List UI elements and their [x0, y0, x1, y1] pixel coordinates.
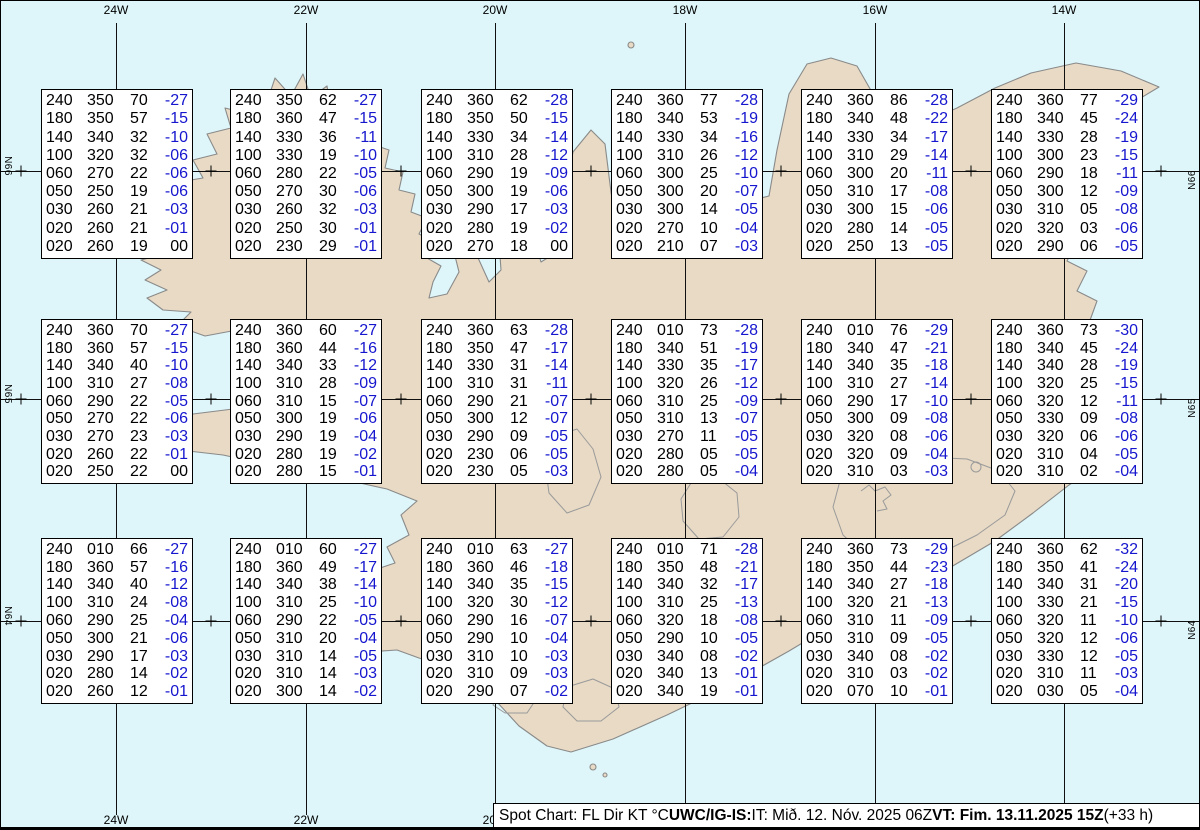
flight-level-value: 140	[426, 577, 467, 593]
level-row: 06029022-05	[235, 612, 377, 630]
spot-box-r1c2: 24035062-2718036047-1514033036-111003301…	[230, 89, 382, 259]
wind-dir-value: 340	[657, 341, 700, 357]
temperature-value: 00	[536, 239, 568, 255]
graticule-cross-icon	[396, 394, 407, 405]
flight-level-value: 020	[996, 239, 1037, 255]
meridian-label-top: 18W	[673, 4, 698, 17]
flight-level-value: 100	[616, 376, 657, 392]
flight-level-value: 050	[235, 411, 276, 427]
wind-speed-value: 06	[510, 447, 536, 463]
graticule-cross-icon	[206, 394, 217, 405]
wind-speed-value: 14	[319, 684, 345, 700]
temperature-value: -17	[726, 577, 758, 593]
wind-dir-value: 300	[87, 631, 130, 647]
level-row: 03029019-04	[235, 428, 377, 446]
flight-level-value: 020	[426, 239, 467, 255]
wind-dir-value: 290	[657, 631, 700, 647]
flight-level-value: 240	[426, 93, 467, 109]
flight-level-value: 060	[46, 613, 87, 629]
meridian-label-top: 22W	[294, 4, 319, 17]
flight-level-value: 030	[46, 202, 87, 218]
level-row: 18035050-15	[426, 110, 568, 128]
flight-level-value: 020	[616, 464, 657, 480]
wind-dir-value: 310	[847, 148, 890, 164]
temperature-value: -13	[726, 595, 758, 611]
wind-speed-value: 03	[890, 464, 916, 480]
wind-dir-value: 260	[87, 684, 130, 700]
wind-speed-value: 23	[130, 429, 156, 445]
temperature-value: -12	[726, 376, 758, 392]
level-row: 14033034-17	[806, 128, 948, 146]
flight-level-value: 020	[996, 464, 1037, 480]
level-row: 18035044-23	[806, 559, 948, 577]
flight-level-value: 060	[616, 394, 657, 410]
flight-level-value: 140	[426, 358, 467, 374]
temperature-value: -06	[345, 411, 377, 427]
level-row: 24036077-29	[996, 92, 1138, 110]
temperature-value: -19	[1106, 130, 1138, 146]
wind-dir-value: 270	[657, 429, 700, 445]
flight-level-value: 030	[235, 202, 276, 218]
wind-dir-value: 340	[847, 577, 890, 593]
temperature-value: -29	[916, 323, 948, 339]
wind-dir-value: 340	[657, 684, 700, 700]
wind-speed-value: 15	[319, 394, 345, 410]
wind-dir-value: 340	[657, 111, 700, 127]
parallel-label-left: N65	[2, 384, 12, 404]
wind-speed-value: 86	[890, 93, 916, 109]
level-row: 18034045-24	[996, 110, 1138, 128]
wind-dir-value: 330	[1037, 595, 1080, 611]
wind-dir-value: 310	[1037, 447, 1080, 463]
graticule-cross-icon	[966, 616, 977, 627]
wind-dir-value: 360	[1037, 93, 1080, 109]
wind-speed-value: 12	[1080, 631, 1106, 647]
wind-speed-value: 23	[1080, 148, 1106, 164]
level-row: 03029017-03	[46, 648, 188, 666]
flight-level-value: 020	[46, 684, 87, 700]
flight-level-value: 020	[426, 464, 467, 480]
level-row: 05031009-05	[806, 630, 948, 648]
temperature-value: -17	[536, 341, 568, 357]
temperature-value: -07	[726, 184, 758, 200]
wind-dir-value: 290	[847, 394, 890, 410]
wind-speed-value: 40	[130, 358, 156, 374]
flight-level-value: 030	[996, 202, 1037, 218]
wind-dir-value: 290	[467, 394, 510, 410]
wind-dir-value: 280	[87, 666, 130, 682]
wind-dir-value: 260	[87, 239, 130, 255]
level-row: 10031028-12	[426, 147, 568, 165]
level-row: 10031025-13	[616, 594, 758, 612]
wind-speed-value: 09	[510, 666, 536, 682]
temperature-value: -10	[156, 130, 188, 146]
wind-dir-value: 340	[276, 577, 319, 593]
wind-speed-value: 19	[700, 684, 726, 700]
wind-dir-value: 320	[657, 613, 700, 629]
temperature-value: -06	[156, 411, 188, 427]
level-row: 24001060-27	[235, 541, 377, 559]
level-row: 03030015-06	[806, 201, 948, 219]
temperature-value: -28	[916, 93, 948, 109]
flight-level-value: 060	[616, 166, 657, 182]
wind-speed-value: 21	[510, 394, 536, 410]
flight-level-value: 140	[616, 358, 657, 374]
flight-level-value: 030	[616, 429, 657, 445]
temperature-value: -04	[1106, 464, 1138, 480]
flight-level-value: 050	[806, 184, 847, 200]
flight-level-value: 180	[235, 560, 276, 576]
temperature-value: -28	[726, 323, 758, 339]
level-row: 03026032-03	[235, 201, 377, 219]
temperature-value: -27	[345, 542, 377, 558]
level-row: 03034008-02	[806, 648, 948, 666]
wind-speed-value: 47	[510, 341, 536, 357]
flight-level-value: 240	[996, 323, 1037, 339]
flight-level-value: 140	[46, 358, 87, 374]
wind-speed-value: 40	[130, 577, 156, 593]
level-row: 02025013-05	[806, 238, 948, 256]
flight-level-value: 020	[806, 666, 847, 682]
level-row: 03027011-05	[616, 428, 758, 446]
temperature-value: -02	[916, 666, 948, 682]
flight-level-value: 140	[806, 358, 847, 374]
temperature-value: -09	[1106, 184, 1138, 200]
temperature-value: -05	[1106, 649, 1138, 665]
meridian-label-top: 20W	[483, 4, 508, 17]
wind-dir-value: 340	[657, 666, 700, 682]
wind-dir-value: 310	[1037, 202, 1080, 218]
temperature-value: -05	[726, 202, 758, 218]
parallel-label-right: N64	[1188, 620, 1198, 640]
temperature-value: -04	[156, 613, 188, 629]
footer-text-segment: IT: Mið. 12. Nóv. 2025 06Z	[752, 807, 933, 825]
level-row: 02029007-02	[426, 683, 568, 701]
flight-level-value: 100	[46, 376, 87, 392]
flight-level-value: 020	[616, 447, 657, 463]
wind-dir-value: 310	[657, 394, 700, 410]
wind-speed-value: 05	[510, 464, 536, 480]
temperature-value: -01	[345, 464, 377, 480]
temperature-value: -30	[1106, 323, 1138, 339]
level-row: 03031010-03	[426, 648, 568, 666]
flight-level-value: 100	[46, 148, 87, 164]
level-row: 0202701800	[426, 238, 568, 256]
level-row: 02028014-05	[806, 220, 948, 238]
level-row: 03030014-05	[616, 201, 758, 219]
wind-speed-value: 28	[319, 376, 345, 392]
wind-dir-value: 330	[847, 130, 890, 146]
level-row: 24036062-32	[996, 541, 1138, 559]
level-row: 24001071-28	[616, 541, 758, 559]
temperature-value: -27	[345, 323, 377, 339]
wind-dir-value: 340	[847, 649, 890, 665]
wind-dir-value: 330	[657, 130, 700, 146]
graticule-cross-icon	[16, 166, 27, 177]
temperature-value: -08	[916, 184, 948, 200]
level-row: 24001076-29	[806, 322, 948, 340]
level-row: 14034032-17	[616, 577, 758, 595]
wind-dir-value: 260	[87, 202, 130, 218]
wind-dir-value: 310	[847, 613, 890, 629]
wind-speed-value: 57	[130, 560, 156, 576]
level-row: 24036073-29	[806, 541, 948, 559]
temperature-value: -19	[726, 341, 758, 357]
parallel-label-right: N66	[1188, 170, 1198, 190]
flight-level-value: 060	[806, 166, 847, 182]
temperature-value: -10	[726, 166, 758, 182]
wind-dir-value: 030	[1037, 684, 1080, 700]
level-row: 03033012-05	[996, 648, 1138, 666]
wind-dir-value: 310	[276, 631, 319, 647]
flight-level-value: 140	[616, 130, 657, 146]
flight-level-value: 180	[46, 560, 87, 576]
level-row: 14034028-19	[996, 357, 1138, 375]
temperature-value: -03	[345, 202, 377, 218]
temperature-value: -28	[536, 323, 568, 339]
spot-box-r2c1: 24036070-2718036057-1514034040-101003102…	[41, 319, 193, 484]
level-row: 02026022-01	[46, 446, 188, 464]
temperature-value: -01	[916, 684, 948, 700]
wind-speed-value: 62	[319, 93, 345, 109]
wind-speed-value: 19	[319, 447, 345, 463]
flight-level-value: 140	[806, 577, 847, 593]
wind-speed-value: 22	[130, 447, 156, 463]
wind-dir-value: 280	[467, 221, 510, 237]
wind-dir-value: 270	[467, 239, 510, 255]
temperature-value: -05	[916, 221, 948, 237]
wind-dir-value: 330	[1037, 130, 1080, 146]
temperature-value: 00	[156, 239, 188, 255]
wind-dir-value: 360	[657, 93, 700, 109]
wind-dir-value: 310	[276, 666, 319, 682]
wind-dir-value: 330	[467, 130, 510, 146]
wind-speed-value: 32	[130, 130, 156, 146]
wind-dir-value: 310	[276, 649, 319, 665]
wind-dir-value: 290	[467, 684, 510, 700]
temperature-value: -14	[916, 148, 948, 164]
wind-speed-value: 21	[1080, 595, 1106, 611]
wind-dir-value: 010	[87, 542, 130, 558]
level-row: 24001063-27	[426, 541, 568, 559]
wind-speed-value: 22	[130, 464, 156, 480]
wind-dir-value: 310	[847, 184, 890, 200]
wind-dir-value: 010	[847, 323, 890, 339]
graticule-cross-icon	[396, 166, 407, 177]
temperature-value: -06	[1106, 221, 1138, 237]
wind-dir-value: 360	[847, 542, 890, 558]
wind-dir-value: 340	[1037, 358, 1080, 374]
flight-level-value: 050	[426, 411, 467, 427]
wind-speed-value: 11	[890, 613, 916, 629]
level-row: 02021007-03	[616, 238, 758, 256]
level-row: 18034048-22	[806, 110, 948, 128]
wind-speed-value: 08	[890, 649, 916, 665]
temperature-value: -10	[916, 394, 948, 410]
temperature-value: -02	[156, 666, 188, 682]
temperature-value: -22	[916, 111, 948, 127]
level-row: 10031027-08	[46, 375, 188, 393]
wind-dir-value: 280	[847, 221, 890, 237]
wind-dir-value: 340	[1037, 341, 1080, 357]
flight-level-value: 100	[806, 148, 847, 164]
flight-level-value: 240	[806, 93, 847, 109]
wind-speed-value: 05	[1080, 684, 1106, 700]
wind-dir-value: 330	[467, 358, 510, 374]
graticule-cross-icon	[1156, 166, 1167, 177]
flight-level-value: 060	[426, 394, 467, 410]
graticule-cross-icon	[776, 394, 787, 405]
flight-level-value: 060	[46, 166, 87, 182]
temperature-value: -10	[1106, 613, 1138, 629]
wind-dir-value: 340	[87, 577, 130, 593]
wind-dir-value: 340	[1037, 577, 1080, 593]
temperature-value: -08	[1106, 202, 1138, 218]
wind-speed-value: 48	[890, 111, 916, 127]
level-row: 06029016-07	[426, 612, 568, 630]
level-row: 05030020-07	[616, 183, 758, 201]
wind-dir-value: 350	[657, 560, 700, 576]
flight-level-value: 240	[46, 323, 87, 339]
flight-level-value: 180	[235, 341, 276, 357]
level-row: 14034040-12	[46, 577, 188, 595]
level-row: 24036070-27	[46, 322, 188, 340]
temperature-value: -12	[536, 595, 568, 611]
level-row: 18036044-16	[235, 340, 377, 358]
wind-dir-value: 340	[847, 358, 890, 374]
level-row: 02003005-04	[996, 683, 1138, 701]
temperature-value: -10	[345, 595, 377, 611]
level-row: 05027030-06	[235, 183, 377, 201]
wind-dir-value: 340	[87, 130, 130, 146]
flight-level-value: 020	[616, 666, 657, 682]
footer-text-segment: VT: Fim. 13.11.2025 15Z	[932, 807, 1103, 825]
level-row: 06032011-10	[996, 612, 1138, 630]
wind-speed-value: 62	[1080, 542, 1106, 558]
flight-level-value: 020	[235, 684, 276, 700]
temperature-value: -04	[345, 429, 377, 445]
graticule-cross-icon	[776, 166, 787, 177]
temperature-value: -08	[156, 376, 188, 392]
level-row: 10032025-15	[996, 375, 1138, 393]
graticule-cross-icon	[396, 616, 407, 627]
wind-dir-value: 320	[1037, 394, 1080, 410]
flight-level-value: 240	[46, 93, 87, 109]
wind-speed-value: 30	[319, 221, 345, 237]
flight-level-value: 050	[46, 631, 87, 647]
level-row: 06032018-08	[616, 612, 758, 630]
wind-speed-value: 09	[890, 631, 916, 647]
flight-level-value: 180	[996, 560, 1037, 576]
flight-level-value: 240	[996, 93, 1037, 109]
flight-level-value: 030	[235, 649, 276, 665]
temperature-value: -03	[536, 649, 568, 665]
wind-dir-value: 270	[276, 184, 319, 200]
wind-speed-value: 25	[130, 613, 156, 629]
wind-dir-value: 230	[276, 239, 319, 255]
level-row: 06029025-04	[46, 612, 188, 630]
temperature-value: -03	[916, 464, 948, 480]
wind-dir-value: 360	[87, 341, 130, 357]
level-row: 06029017-10	[806, 393, 948, 411]
flight-level-value: 050	[46, 184, 87, 200]
temperature-value: -29	[916, 542, 948, 558]
level-row: 02031003-03	[806, 463, 948, 481]
temperature-value: -05	[345, 613, 377, 629]
flight-level-value: 180	[996, 111, 1037, 127]
wind-speed-value: 14	[130, 666, 156, 682]
level-row: 06029019-09	[426, 165, 568, 183]
wind-speed-value: 32	[130, 148, 156, 164]
wind-dir-value: 300	[657, 184, 700, 200]
flight-level-value: 180	[235, 111, 276, 127]
wind-speed-value: 22	[130, 166, 156, 182]
level-row: 03029009-05	[426, 428, 568, 446]
flight-level-value: 020	[235, 464, 276, 480]
flight-level-value: 140	[996, 577, 1037, 593]
flight-level-value: 020	[996, 447, 1037, 463]
level-row: 05031017-08	[806, 183, 948, 201]
wind-speed-value: 14	[890, 221, 916, 237]
spot-box-r3c4: 24001071-2818035048-2114034032-171003102…	[611, 538, 763, 704]
temperature-value: -02	[726, 649, 758, 665]
wind-dir-value: 260	[276, 202, 319, 218]
flight-level-value: 060	[235, 166, 276, 182]
wind-speed-value: 03	[1080, 221, 1106, 237]
wind-dir-value: 340	[467, 577, 510, 593]
flight-level-value: 050	[235, 631, 276, 647]
flight-level-value: 240	[616, 323, 657, 339]
flight-level-value: 140	[996, 358, 1037, 374]
temperature-value: -06	[1106, 631, 1138, 647]
wind-dir-value: 360	[467, 323, 510, 339]
level-row: 10032026-12	[616, 375, 758, 393]
level-row: 0202601900	[46, 238, 188, 256]
level-row: 02028005-04	[616, 463, 758, 481]
temperature-value: -07	[536, 394, 568, 410]
temperature-value: -14	[536, 358, 568, 374]
flight-level-value: 020	[46, 239, 87, 255]
wind-speed-value: 13	[700, 411, 726, 427]
level-row: 18036057-15	[46, 340, 188, 358]
wind-speed-value: 14	[319, 649, 345, 665]
temperature-value: -17	[916, 130, 948, 146]
island	[628, 42, 634, 48]
flight-level-value: 050	[616, 184, 657, 200]
wind-speed-value: 21	[130, 631, 156, 647]
level-row: 06028022-05	[235, 165, 377, 183]
wind-dir-value: 290	[276, 613, 319, 629]
flight-level-value: 020	[996, 221, 1037, 237]
level-row: 24001073-28	[616, 322, 758, 340]
level-row: 06031011-09	[806, 612, 948, 630]
level-row: 05025019-06	[46, 183, 188, 201]
wind-speed-value: 35	[700, 358, 726, 374]
level-row: 02034019-01	[616, 683, 758, 701]
graticule-cross-icon	[16, 616, 27, 627]
wind-speed-value: 62	[510, 93, 536, 109]
wind-speed-value: 19	[510, 184, 536, 200]
flight-level-value: 180	[616, 341, 657, 357]
temperature-value: -27	[156, 323, 188, 339]
temperature-value: -15	[536, 111, 568, 127]
temperature-value: -05	[345, 649, 377, 665]
flight-level-value: 240	[616, 93, 657, 109]
spot-box-r3c5: 24036073-2918035044-2314034027-181003202…	[801, 538, 953, 704]
flight-level-value: 020	[46, 464, 87, 480]
level-row: 02023005-03	[426, 463, 568, 481]
flight-level-value: 020	[806, 239, 847, 255]
